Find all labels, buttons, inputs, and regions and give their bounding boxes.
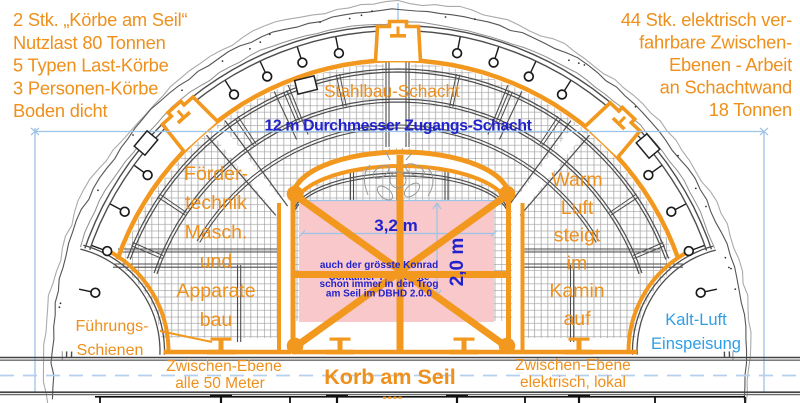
svg-text:Luft: Luft [561,197,594,219]
svg-text:Masch.: Masch. [185,221,248,243]
svg-text:elektrisch, lokal: elektrisch, lokal [520,374,626,391]
svg-text:Führungs-: Führungs- [76,318,149,335]
svg-text:3 Personen-Körbe: 3 Personen-Körbe [13,77,158,98]
svg-text:Nutzlast 80 Tonnen: Nutzlast 80 Tonnen [13,32,166,53]
svg-text:44 Stk. elektrisch ver-: 44 Stk. elektrisch ver- [621,9,792,30]
svg-text:Kalt-Luft: Kalt-Luft [665,311,727,329]
svg-text:bau: bau [200,309,233,331]
svg-text:auch der grösste Konrad: auch der grösste Konrad [320,260,438,271]
svg-text:am Seil im DBHD 2.0.0: am Seil im DBHD 2.0.0 [326,289,433,300]
svg-text:Zwischen-Ebene: Zwischen-Ebene [515,357,630,374]
svg-text:im: im [567,252,588,274]
svg-text:und: und [200,251,233,273]
svg-text:Stahlbau-Schacht: Stahlbau-Schacht [324,81,460,101]
svg-text:fahrbare Zwischen-: fahrbare Zwischen- [639,32,792,53]
svg-text:5 Typen Last-Körbe: 5 Typen Last-Körbe [13,55,169,76]
svg-text:Einspeisung: Einspeisung [651,335,741,353]
svg-text:3,2 m: 3,2 m [374,216,417,235]
svg-text:Warm: Warm [551,169,602,191]
svg-text:12 m Durchmesser Zugangs-Schac: 12 m Durchmesser Zugangs-Schacht [264,118,532,135]
svg-text:2 Stk. „Körbe am Seil“: 2 Stk. „Körbe am Seil“ [13,9,188,30]
svg-text:Boden dicht: Boden dicht [13,100,107,121]
svg-text:technik: technik [185,192,247,214]
svg-text:an Schachtwand: an Schachtwand [660,77,792,98]
svg-text:18 Tonnen: 18 Tonnen [709,99,792,120]
svg-text:Förder-: Förder- [184,163,248,185]
svg-text:alle 50 Meter: alle 50 Meter [175,375,265,392]
svg-text:Kamin: Kamin [549,280,604,302]
svg-text:Ebenen - Arbeit: Ebenen - Arbeit [669,54,792,75]
svg-text:auf: auf [563,308,591,330]
svg-text:Zwischen-Ebene: Zwischen-Ebene [166,358,281,375]
svg-text:Apparate: Apparate [176,280,255,302]
svg-text:Schienen: Schienen [77,342,144,359]
svg-text:Korb am Seil: Korb am Seil [324,365,455,389]
svg-text:2,0 m: 2,0 m [447,238,468,287]
svg-text:steigt: steigt [554,225,601,247]
